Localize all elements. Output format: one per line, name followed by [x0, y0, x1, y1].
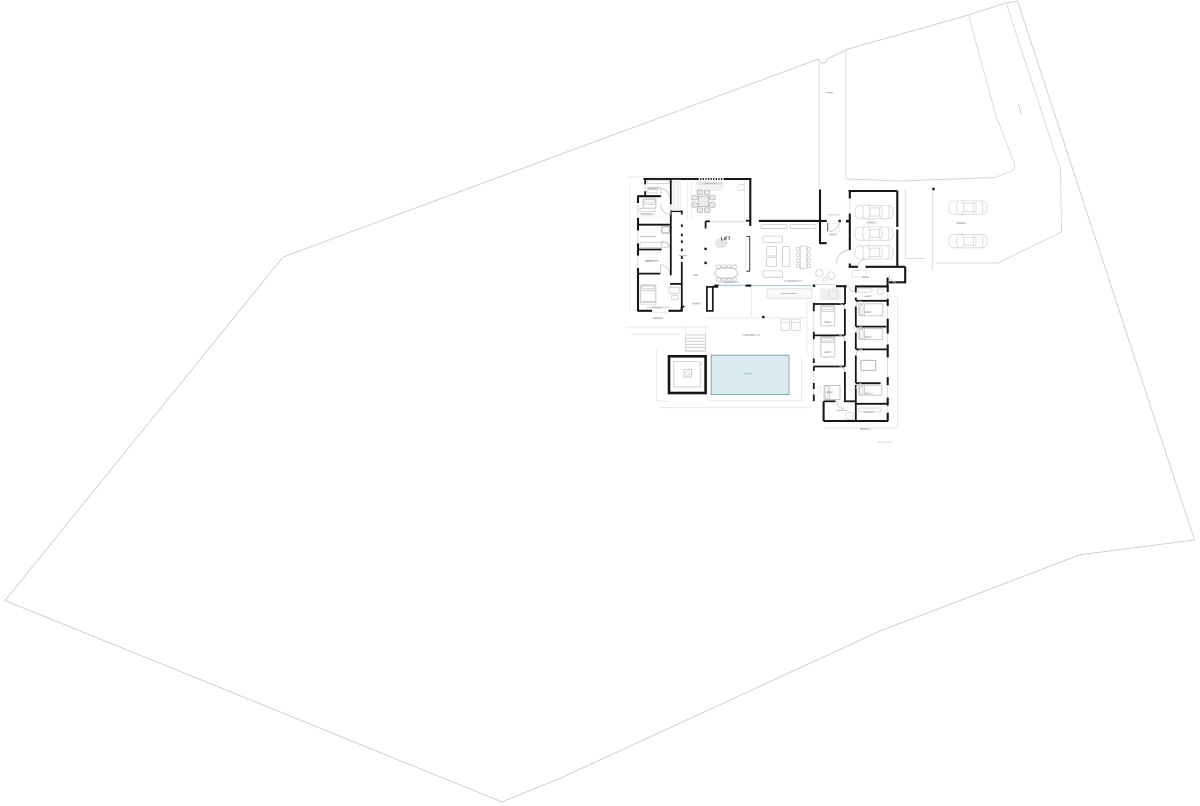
svg-text:GUEST WING: GUEST WING — [878, 442, 892, 444]
svg-text:BEDROOM 3: BEDROOM 3 — [641, 215, 656, 217]
